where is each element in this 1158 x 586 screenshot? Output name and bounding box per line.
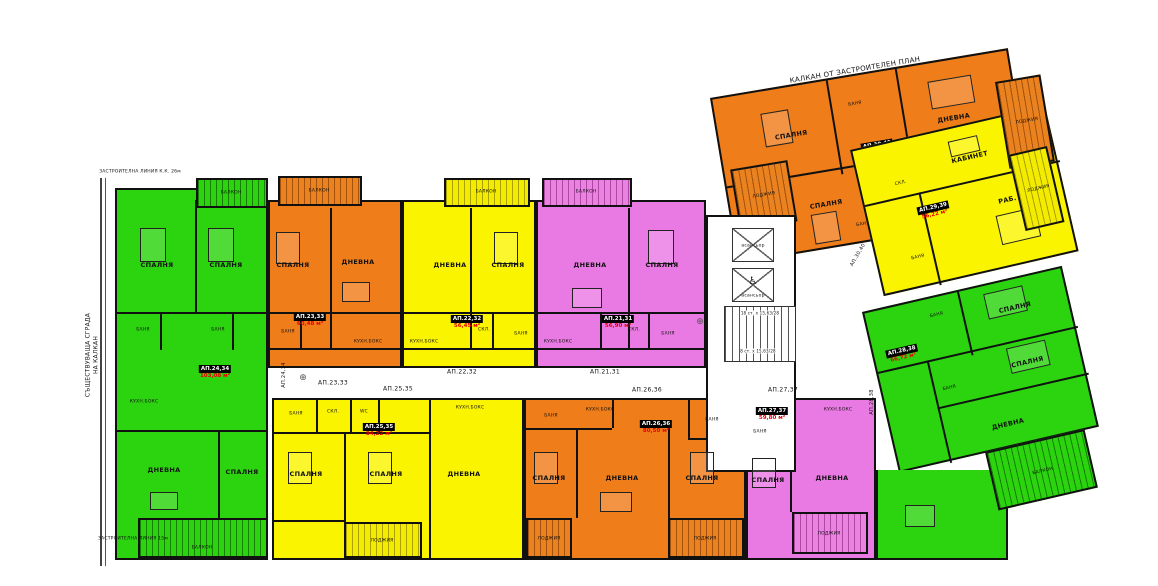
axis-mark: ⊕ (299, 373, 307, 383)
room-label-loggia: ЛОДЖИЯ (371, 539, 394, 544)
furniture (208, 228, 234, 262)
room-label-living: ДНЕВНА (574, 261, 607, 269)
room-label-bath: БАНЯ (661, 332, 674, 337)
wheelchair-icon: ♿ (748, 275, 758, 288)
left-boundary-line (100, 178, 102, 566)
corridor-label-ap2131: АП.21,31 (590, 369, 620, 376)
room-label-bath: БАНЯ (514, 332, 527, 337)
furniture (276, 232, 300, 264)
wall (688, 398, 690, 438)
apartment-id: АП.22,32 (451, 315, 483, 323)
room-label-bedroom: СПАЛНЯ (752, 476, 785, 484)
apartment-area: 103,08 м² (199, 373, 231, 379)
floor-plan: СЪЩЕСТВУВАЩА СГРАДА НА КАЛКАН ЗАСТРОИТЕЛ… (0, 0, 1158, 586)
furniture (572, 288, 602, 308)
furniture (494, 232, 518, 264)
wall (429, 398, 431, 560)
wall (524, 428, 612, 430)
room-label-balcony: БАЛКОН (192, 546, 213, 551)
existing-building-label-1: СЪЩЕСТВУВАЩА СГРАДА (85, 313, 92, 397)
apartment-id: АП.25,35 (363, 423, 395, 431)
build-line-note-top: ЗАСТРОИТЕЛНА ЛИНИЯ К.К. 26м (99, 170, 181, 175)
apartment-tag-ap2838: АП.28,38 66,72 м² (885, 344, 920, 365)
elevator-label-2: асансьор (741, 294, 764, 299)
room-label-wc: WC (360, 410, 368, 415)
wall (957, 292, 974, 356)
wall (218, 430, 220, 518)
room-label-storage: СКЛ. (894, 180, 907, 188)
room-label-kitchen: КУХН.БОКС (456, 406, 485, 411)
wall (272, 520, 344, 522)
room-label-kitchen: КУХН.БОКС (586, 408, 615, 413)
wall (344, 432, 346, 522)
room-label-bath: БАНЯ (848, 101, 862, 108)
corridor-label-ap2737: АП.27,37 (768, 387, 798, 394)
room-label-kitchen: КУХН.БОКС (824, 408, 853, 413)
furniture (342, 282, 370, 302)
wall (160, 312, 162, 350)
wall (115, 430, 268, 432)
existing-building-label-2: НА КАЛКАН (93, 336, 100, 374)
room-label-bedroom: СПАЛНЯ (533, 474, 566, 482)
room-label-balcony: БАЛКОН (576, 190, 597, 195)
room-label-living: ДНЕВНА (606, 474, 639, 482)
apartment-area: 59,80 м² (756, 415, 788, 421)
corridor-label-ap2636: АП.26,36 (632, 387, 662, 394)
room-label-loggia: ЛОДЖИЯ (1027, 184, 1051, 194)
room-label-living: ДНЕВНА (448, 470, 481, 478)
wall (668, 428, 670, 518)
room-label-living: ДНЕВНА (342, 258, 375, 266)
wall (612, 398, 614, 428)
room-label-loggia: ЛОДЖИЯ (694, 537, 717, 542)
room-label-bath: БАНЯ (211, 328, 224, 333)
apartment-id: АП.24,34 (199, 365, 231, 373)
wall (272, 432, 430, 434)
room-label-loggia: ЛОДЖИЯ (538, 537, 561, 542)
wall (576, 428, 578, 518)
apartment-area: 84,22 м² (363, 431, 395, 437)
furniture (905, 505, 935, 527)
furniture (368, 452, 392, 484)
wall (648, 312, 650, 348)
room-label-bedroom: СПАЛНЯ (210, 261, 243, 269)
furniture (648, 230, 674, 264)
wall (492, 312, 494, 348)
corridor-label-ap2434: АП.24,34 (281, 362, 287, 387)
room-label-bedroom: СПАЛНЯ (370, 470, 403, 478)
apartment-tag-ap2131: АП.21,31 56,90 м² (602, 315, 634, 329)
left-boundary-line-2 (105, 178, 106, 566)
room-label-balcony: БАЛКОН (221, 191, 242, 196)
room-label-kitchen: КУХН.БОКС (544, 340, 573, 345)
corridor-label-ap2232: АП.22,32 (447, 369, 477, 376)
room-label-bath: БАНЯ (911, 254, 925, 262)
apartment-tag-ap2434: АП.24,34 103,08 м² (199, 365, 231, 379)
room-label-kitchen: КУХН.БОКС (354, 340, 383, 345)
apartment-id: АП.23,33 (294, 313, 326, 321)
apartment-tag-ap2636: АП.26,36 80,50 м² (640, 420, 672, 434)
room-label-bedroom: СПАЛНЯ (226, 468, 259, 476)
apartment-ap2434 (115, 188, 268, 560)
room-label-kitchen: КУХН.БОКС (410, 340, 439, 345)
furniture (927, 75, 975, 110)
furniture (150, 492, 178, 510)
corridor-label-ap2535: АП.25,35 (383, 386, 413, 393)
wall (937, 373, 1088, 410)
apartment-id: АП.27,37 (756, 407, 788, 415)
apartment-id: АП.21,31 (602, 315, 634, 323)
elevator-label-1: асансьор (741, 244, 764, 249)
room-label-bath: БАНЯ (281, 330, 294, 335)
room-label-balcony: БАЛКОН (1032, 467, 1053, 477)
apartment-area: 56,90 м² (602, 323, 634, 329)
room-label-bath: БАНЯ (930, 311, 944, 319)
furniture (140, 228, 166, 262)
furniture (760, 109, 793, 147)
build-line-note-bottom: ЗАСТРОИТЕЛНА ЛИНИЯ 15м (98, 537, 168, 542)
axis-mark: ⊕ (696, 317, 704, 327)
furniture (811, 211, 842, 245)
apartment-tag-ap2737: АП.27,37 59,80 м² (756, 407, 788, 421)
stairs-note-lower: 8 ст. х 15,63/28 (740, 349, 776, 354)
apartment-tag-ap2535: АП.25,35 84,22 м² (363, 423, 395, 437)
room-label-bath: БАНЯ (544, 414, 557, 419)
apartment-area: 60,48 м² (294, 321, 326, 327)
room-label-kitchen: КУХН.БОКС (130, 400, 159, 405)
corridor-label-ap3040: АП.30,40 (849, 242, 867, 267)
room-label-bath: БАНЯ (136, 328, 149, 333)
room-label-balcony: БАЛКОН (309, 189, 330, 194)
wall (195, 200, 197, 312)
room-label-loggia: ЛОДЖИЯ (1015, 117, 1038, 126)
room-label-bedroom: СПАЛНЯ (277, 261, 310, 269)
apartment-ap2838-lower (876, 470, 1008, 560)
room-label-storage: СКЛ. (327, 410, 339, 415)
wall (826, 80, 844, 174)
room-label-bedroom: СПАЛНЯ (686, 474, 719, 482)
room-label-living: ДНЕВНА (148, 466, 181, 474)
corridor-label-ap2838: АП.28,38 (869, 389, 875, 414)
room-label-bath: БАНЯ (705, 418, 718, 423)
furniture (288, 452, 312, 484)
apartment-tag-ap2333: АП.23,33 60,48 м² (294, 313, 326, 327)
room-label-bedroom: СПАЛНЯ (141, 261, 174, 269)
apartment-tag-ap2232: АП.22,32 56,45 м² (451, 315, 483, 329)
stairs-note-upper: 18 ст. х 15,63/28 (741, 311, 779, 316)
room-label-bedroom: СПАЛНЯ (646, 261, 679, 269)
room-label-living: ДНЕВНА (991, 416, 1025, 431)
room-label-living: ДНЕВНА (434, 261, 467, 269)
apartment-area: 56,45 м² (451, 323, 483, 329)
wall (927, 360, 953, 463)
furniture (600, 492, 632, 512)
wall (316, 398, 318, 432)
room-label-bedroom: СПАЛНЯ (290, 470, 323, 478)
wall (115, 312, 706, 314)
wall (350, 398, 352, 432)
room-label-loggia: ЛОДЖИЯ (818, 532, 841, 537)
wall (232, 312, 234, 350)
room-label-bedroom: СПАЛНЯ (809, 198, 843, 211)
wall (268, 348, 706, 350)
room-label-balcony: БАЛКОН (476, 190, 497, 195)
room-label-bath: БАНЯ (753, 430, 766, 435)
wall (330, 208, 332, 348)
room-label-living: ДНЕВНА (816, 474, 849, 482)
corridor-label-ap2333: АП.23,33 (318, 380, 348, 387)
apartment-id: АП.26,36 (640, 420, 672, 428)
apartment-area: 80,50 м² (640, 428, 672, 434)
room-label-bedroom: СПАЛНЯ (492, 261, 525, 269)
room-label-bath: БАНЯ (289, 412, 302, 417)
room-label-bath: БАНЯ (942, 384, 956, 392)
